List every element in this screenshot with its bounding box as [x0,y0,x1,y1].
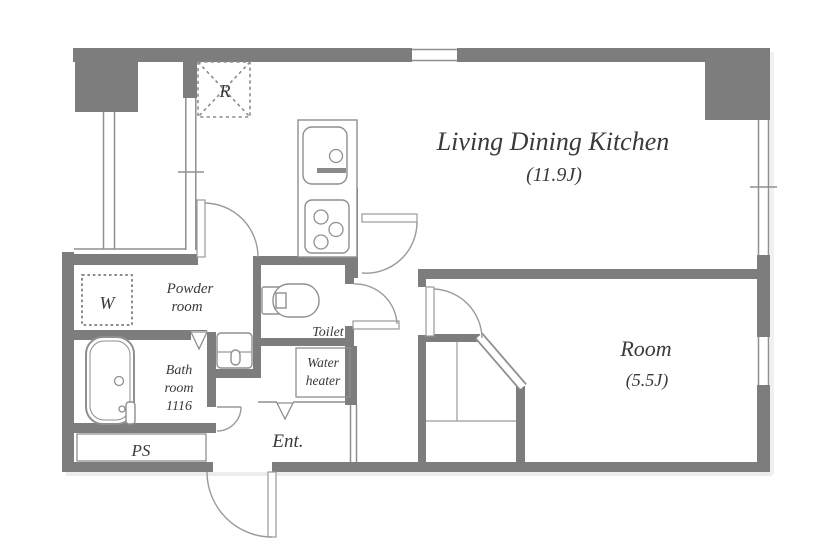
wall-entrance-left [207,369,216,407]
room-area: (5.5J) [626,370,668,391]
ldk-area: (11.9J) [526,164,582,186]
wall-left [62,252,74,472]
bath-faucet [126,402,135,424]
toilet-label: Toilet [312,325,344,340]
wall-bath-bottom [62,423,216,433]
wall-corner-block-tr [705,48,770,120]
wall-right-low [757,385,770,472]
water-heater-label-2: heater [306,373,341,388]
refrigerator-label: R [219,81,231,101]
bath-label-2: room [164,381,193,396]
powder-label-1: Powder [166,281,214,297]
wall-powder-toilet-divider [253,258,261,378]
wall-window-stub [183,50,197,98]
bath-label-1: Bath [166,363,192,378]
kitchen-sink [303,127,347,184]
room-label: Room [619,336,671,361]
washbasin-faucet [231,350,240,365]
shadow [66,472,772,476]
door-leaf [362,214,417,222]
bath-label-3: 1116 [166,399,192,414]
wall-bottom-right [272,462,770,472]
door-leaf [268,472,276,537]
wall-bottom-left [62,462,213,472]
shadow [770,52,774,474]
floor-plan-drawing: Living Dining Kitchen (11.9J) Room (5.5J… [0,0,820,538]
wall-powder-top [62,254,198,265]
water-heater-label-1: Water [307,355,339,370]
floor-plan: Living Dining Kitchen (11.9J) Room (5.5J… [0,0,820,538]
closet-w-label: W [100,293,117,313]
wall-top-right [457,48,705,62]
wall-waterheater-right [345,346,357,405]
wall-powder-bath [62,330,207,340]
wall-right-mid [757,255,770,337]
wall-ldk-room-divider [418,269,758,279]
shadow [140,112,143,115]
ldk-label: Living Dining Kitchen [436,127,670,156]
entrance-label: Ent. [271,431,303,452]
powder-label-2: room [171,299,202,315]
door-leaf [353,321,399,329]
sink-faucet [317,168,346,173]
door-leaf [426,287,434,336]
wall-corner-block-tl [75,50,138,112]
door-leaf [197,200,205,257]
ps-label: PS [131,441,151,460]
toilet-seat-notch [276,293,286,308]
wall-closet-right [516,386,525,462]
wall-room-left-lower [418,335,426,462]
wall-room-left-upper [418,269,426,287]
